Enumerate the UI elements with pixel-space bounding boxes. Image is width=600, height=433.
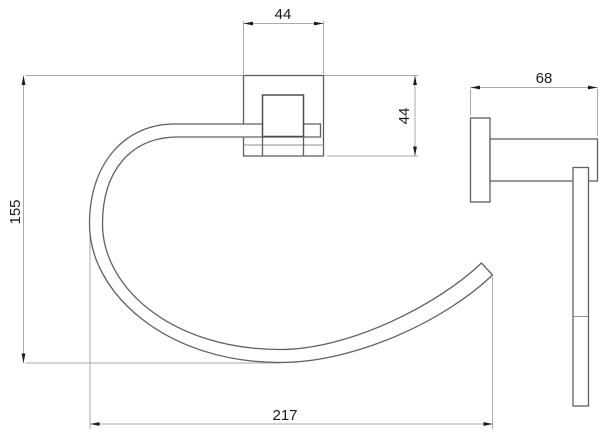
side-wall-plate bbox=[471, 118, 491, 202]
dim-overall-width-label: 217 bbox=[272, 407, 297, 424]
technical-drawing-canvas: 44 44 155 217 68 bbox=[0, 0, 600, 433]
side-ring-profile bbox=[573, 168, 589, 407]
wall-bracket bbox=[263, 95, 304, 137]
dim-depth-label: 68 bbox=[536, 70, 553, 87]
dim-plate-width-label: 44 bbox=[275, 6, 292, 23]
dim-plate-height-label: 44 bbox=[396, 108, 413, 125]
dim-overall-height-label: 155 bbox=[7, 199, 24, 224]
drawing-sheet: 44 44 155 217 68 bbox=[0, 0, 600, 433]
